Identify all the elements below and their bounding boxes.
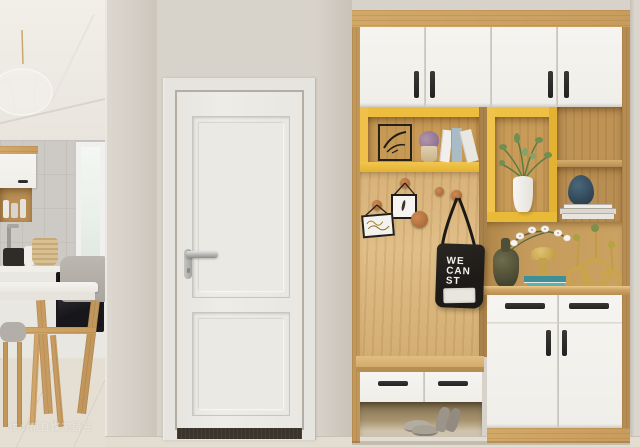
watermark: 住小帮自媒家居号	[9, 420, 93, 433]
olive-vase-neck	[501, 238, 510, 252]
dining-table-apron	[0, 292, 95, 300]
cabinet-handle	[414, 71, 419, 98]
yellow-shelf-frame-top	[360, 107, 479, 117]
unit-right-frame	[622, 27, 630, 443]
flower-bud	[591, 224, 599, 232]
gold-ring-stem	[595, 230, 597, 260]
slipper	[412, 425, 438, 436]
kitchen-area	[0, 0, 105, 447]
bench-drawer-handle	[438, 381, 468, 386]
stool-leg	[17, 342, 22, 427]
door-upper-panel	[192, 116, 290, 298]
door-lower-panel	[192, 312, 290, 416]
tote-bag-text: WE CAN ST	[446, 257, 472, 288]
cabinet-door-seam	[490, 27, 492, 107]
bench-drawer-handle	[378, 381, 408, 386]
bench-top	[356, 356, 484, 367]
faucet-spout	[7, 224, 19, 228]
cabinet-handle	[430, 71, 435, 98]
stool-leg	[3, 342, 8, 427]
display-box-frame-bottom	[487, 212, 557, 222]
sideboard-door-handle	[562, 330, 567, 356]
door-upper-panel-field	[199, 123, 283, 291]
door-keyhole	[187, 268, 190, 273]
navy-vase	[568, 175, 594, 206]
greenery-sprigs	[495, 130, 553, 182]
wire-art-frame	[378, 124, 412, 161]
yellow-shelf-board	[360, 162, 479, 172]
flower-bud	[573, 234, 580, 241]
upper-cabinet-handle	[18, 180, 28, 183]
hanging-sign	[361, 213, 395, 239]
succulent-pot	[421, 146, 437, 162]
cube-shelf-board	[557, 160, 622, 167]
unit-top-band	[352, 10, 630, 27]
cabinet-handle	[548, 71, 553, 98]
door-lower-panel-field	[199, 319, 283, 409]
woven-basket	[32, 238, 58, 266]
jar-1	[3, 200, 9, 218]
tote-bag-straps	[436, 196, 482, 250]
teal-book	[524, 276, 566, 283]
pendant-light	[0, 30, 58, 122]
bag-paper-patch	[443, 288, 475, 304]
tote-bag-line: ST	[446, 277, 471, 288]
tote-bag: WE CAN ST	[435, 243, 485, 309]
wood-knob	[435, 187, 444, 196]
cabinet-door-seam	[556, 27, 558, 107]
kettle	[3, 248, 25, 266]
sideboard-drawer-handle	[505, 303, 545, 309]
book-stack	[560, 204, 616, 218]
entryway-photo: WE CAN ST	[0, 0, 640, 447]
olive-glass-vase	[493, 248, 519, 288]
cabinet-door-seam	[424, 27, 426, 107]
unit-floor-shadow	[352, 441, 630, 445]
white-vase	[513, 176, 533, 212]
cabinet-handle	[564, 71, 569, 98]
cube-shelf-upper	[557, 107, 622, 162]
stool-cushion	[0, 322, 26, 342]
sign-script	[363, 215, 392, 235]
doormat	[177, 428, 302, 439]
door-slab	[177, 92, 302, 428]
top-cabinets	[360, 27, 622, 107]
sideboard-center-seam	[557, 295, 559, 428]
flower-bud	[608, 241, 615, 248]
bench-drawer-seam	[423, 372, 425, 402]
sideboard-drawer-handle	[569, 303, 609, 309]
right-wall-strip	[630, 0, 640, 447]
upper-cabinet-trim	[0, 146, 38, 154]
dining-table-top	[0, 282, 98, 292]
sideboard-counter	[482, 286, 630, 295]
pillar-corner-highlight	[105, 0, 107, 447]
frame-feather-print	[401, 200, 406, 211]
bench-drawers	[360, 372, 482, 402]
door-lever-handle	[186, 251, 218, 258]
jar-2	[11, 203, 18, 218]
wire-art-bird	[380, 126, 410, 159]
wall-pillar	[105, 0, 157, 447]
stacked-book	[562, 213, 614, 219]
jar-3	[20, 199, 26, 218]
unit-left-frame	[352, 27, 360, 443]
sideboard-door-handle	[546, 330, 551, 356]
wood-knob-large	[411, 211, 428, 228]
drawer-seam	[487, 322, 622, 324]
wall-gap	[316, 0, 352, 447]
sideboard	[487, 295, 622, 428]
display-box-frame-left	[487, 107, 495, 222]
display-box-frame-top	[487, 107, 557, 117]
